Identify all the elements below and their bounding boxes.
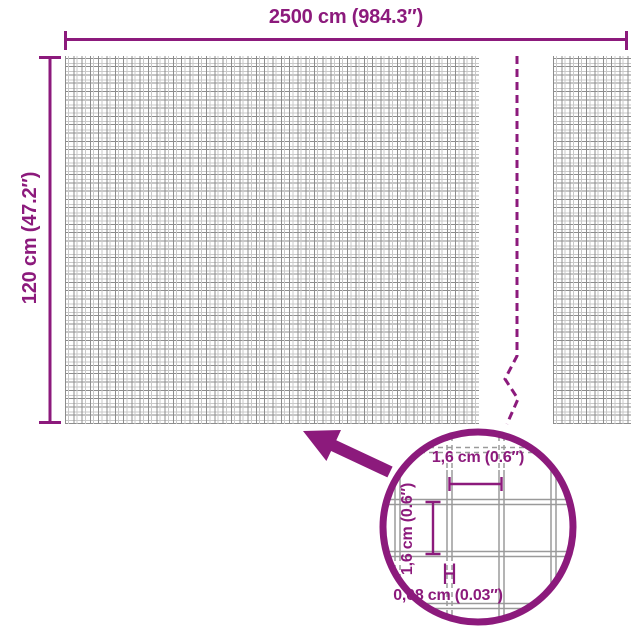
magnifier-cell-width-label: 1,6 cm (0.6″) <box>432 450 524 466</box>
width-dimension-line <box>64 31 628 50</box>
magnifier-cell-height-label: 1,6 cm (0.6″) <box>400 483 416 575</box>
height-dimension-line <box>39 56 61 424</box>
diagram-annotations <box>0 0 640 640</box>
product-dimension-diagram: 2500 cm (984.3″) 120 cm (47.2″) 1,6 cm (… <box>0 0 640 640</box>
pointer-arrow-icon <box>303 430 393 477</box>
width-dimension-label: 2500 cm (984.3″) <box>269 7 423 27</box>
break-line <box>505 56 518 424</box>
magnifier-wire-thickness-label: 0,08 cm (0.03″) <box>393 588 503 604</box>
height-dimension-label: 120 cm (47.2″) <box>20 172 40 304</box>
